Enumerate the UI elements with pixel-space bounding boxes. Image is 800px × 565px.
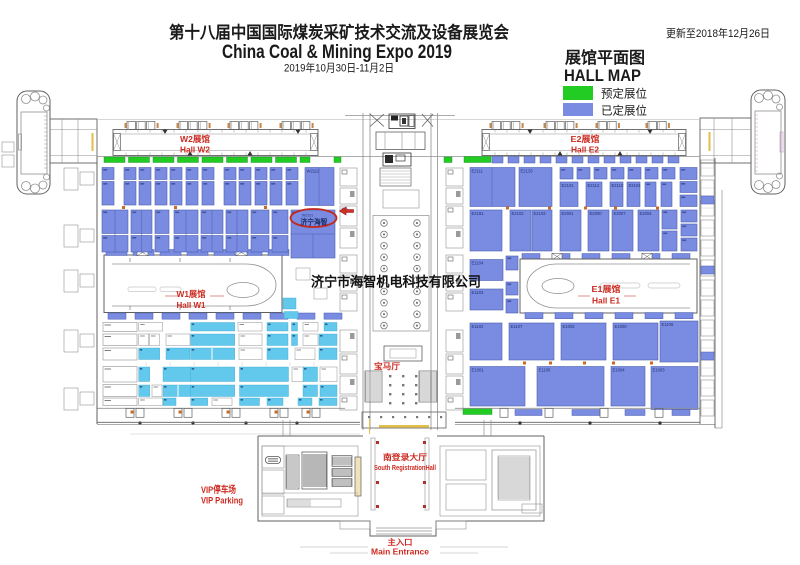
svg-text:济宁市海智机电科技有限公司: 济宁市海智机电科技有限公司 (311, 274, 481, 290)
svg-text:E2004: E2004 (640, 211, 653, 216)
svg-text:E2103: E2103 (534, 211, 547, 216)
svg-text:E2102: E2102 (512, 211, 525, 216)
svg-text:Hall E2: Hall E2 (571, 145, 599, 155)
svg-text:E1102: E1102 (472, 324, 484, 329)
svg-text:E1104: E1104 (472, 261, 484, 266)
svg-text:Main Entrance: Main Entrance (371, 548, 430, 557)
svg-text:E2101: E2101 (562, 183, 575, 188)
svg-text:W1展馆: W1展馆 (177, 289, 206, 299)
svg-text:E1100: E1100 (539, 368, 551, 373)
svg-text:预定展位: 预定展位 (601, 87, 647, 101)
svg-text:VIP Parking: VIP Parking (201, 496, 243, 507)
svg-text:E1103: E1103 (472, 290, 484, 295)
svg-text:E2展馆: E2展馆 (571, 134, 601, 144)
svg-text:VIP停车场: VIP停车场 (201, 484, 236, 496)
svg-text:济宁海智: 济宁海智 (301, 217, 328, 227)
svg-text:Hall E1: Hall E1 (592, 296, 620, 306)
svg-text:E1001: E1001 (472, 368, 485, 373)
svg-text:Hall W1: Hall W1 (177, 300, 206, 310)
svg-text:E2110: E2110 (612, 183, 624, 188)
svg-text:Hall W2: Hall W2 (180, 145, 210, 155)
svg-text:E1003: E1003 (653, 368, 666, 373)
svg-text:W2111: W2111 (307, 169, 320, 174)
svg-text:E2000: E2000 (590, 211, 603, 216)
svg-text:E1000: E1000 (615, 324, 628, 329)
svg-text:South RegistrationHall: South RegistrationHall (374, 463, 436, 472)
svg-text:E1106: E1106 (662, 322, 674, 327)
svg-text:E1展馆: E1展馆 (592, 284, 622, 294)
svg-text:E2007: E2007 (614, 211, 627, 216)
svg-text:E1107: E1107 (511, 324, 523, 329)
svg-text:已定展位: 已定展位 (601, 104, 647, 118)
svg-text:E2104: E2104 (629, 183, 642, 188)
svg-text:南登录大厅: 南登录大厅 (383, 452, 427, 462)
svg-text:W2展馆: W2展馆 (180, 134, 210, 144)
svg-text:E1004: E1004 (613, 368, 626, 373)
svg-text:HALL MAP: HALL MAP (564, 66, 641, 85)
svg-text:E1002: E1002 (563, 324, 576, 329)
svg-text:E2001: E2001 (562, 211, 575, 216)
svg-text:主入口: 主入口 (388, 537, 413, 547)
svg-text:宝马厅: 宝马厅 (374, 361, 400, 371)
svg-text:展馆平面图: 展馆平面图 (565, 48, 645, 67)
svg-text:E2133: E2133 (521, 169, 534, 174)
svg-text:第十八届中国国际煤炭采矿技术交流及设备展览会: 第十八届中国国际煤炭采矿技术交流及设备展览会 (169, 22, 509, 42)
svg-text:更新至2018年12月26日: 更新至2018年12月26日 (666, 26, 770, 40)
svg-text:E2112: E2112 (588, 183, 600, 188)
svg-text:E2181: E2181 (472, 211, 485, 216)
svg-text:2019年10月30日-11月2日: 2019年10月30日-11月2日 (284, 61, 394, 75)
svg-text:China Coal & Mining Expo 2019: China Coal & Mining Expo 2019 (222, 42, 452, 63)
svg-text:E2111: E2111 (472, 169, 484, 174)
